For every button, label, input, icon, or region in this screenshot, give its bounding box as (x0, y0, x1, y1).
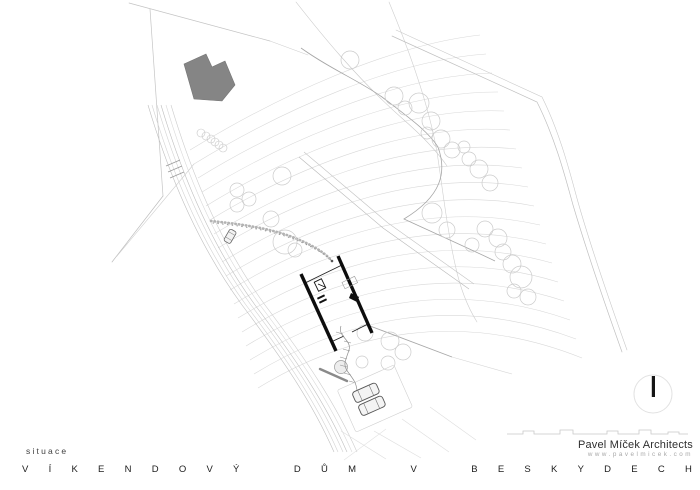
parking (320, 365, 413, 432)
house-glass-front (305, 265, 342, 283)
drawing-label: situace (26, 446, 68, 456)
studio-name: Pavel Míček Architects (578, 439, 693, 451)
access-road (148, 105, 357, 452)
house-glass-back (331, 324, 368, 342)
house-wall-right (338, 256, 372, 333)
weekend-house (301, 256, 372, 351)
trees (230, 51, 536, 374)
car (223, 229, 236, 244)
stream-line (301, 48, 495, 261)
studio-website: www.pavelmicek.com (588, 451, 693, 458)
shrub-row (197, 129, 227, 152)
project-title: VÍKENDOVÝDŮMVBESKYDECH (22, 464, 692, 475)
site-plan-sheet: situace VÍKENDOVÝDŮMVBESKYDECH Pavel Míč… (0, 0, 700, 490)
north-indicator (634, 375, 672, 413)
site-plan-drawing (0, 0, 700, 464)
house-wall-left (301, 274, 336, 351)
fence-lines (299, 152, 474, 289)
logo-skyline (507, 430, 688, 434)
lower-parcel-lines (341, 407, 476, 460)
property-boundaries (112, 2, 627, 352)
north-needle (652, 376, 655, 397)
existing-building (184, 54, 235, 101)
contour-lines (190, 35, 582, 388)
